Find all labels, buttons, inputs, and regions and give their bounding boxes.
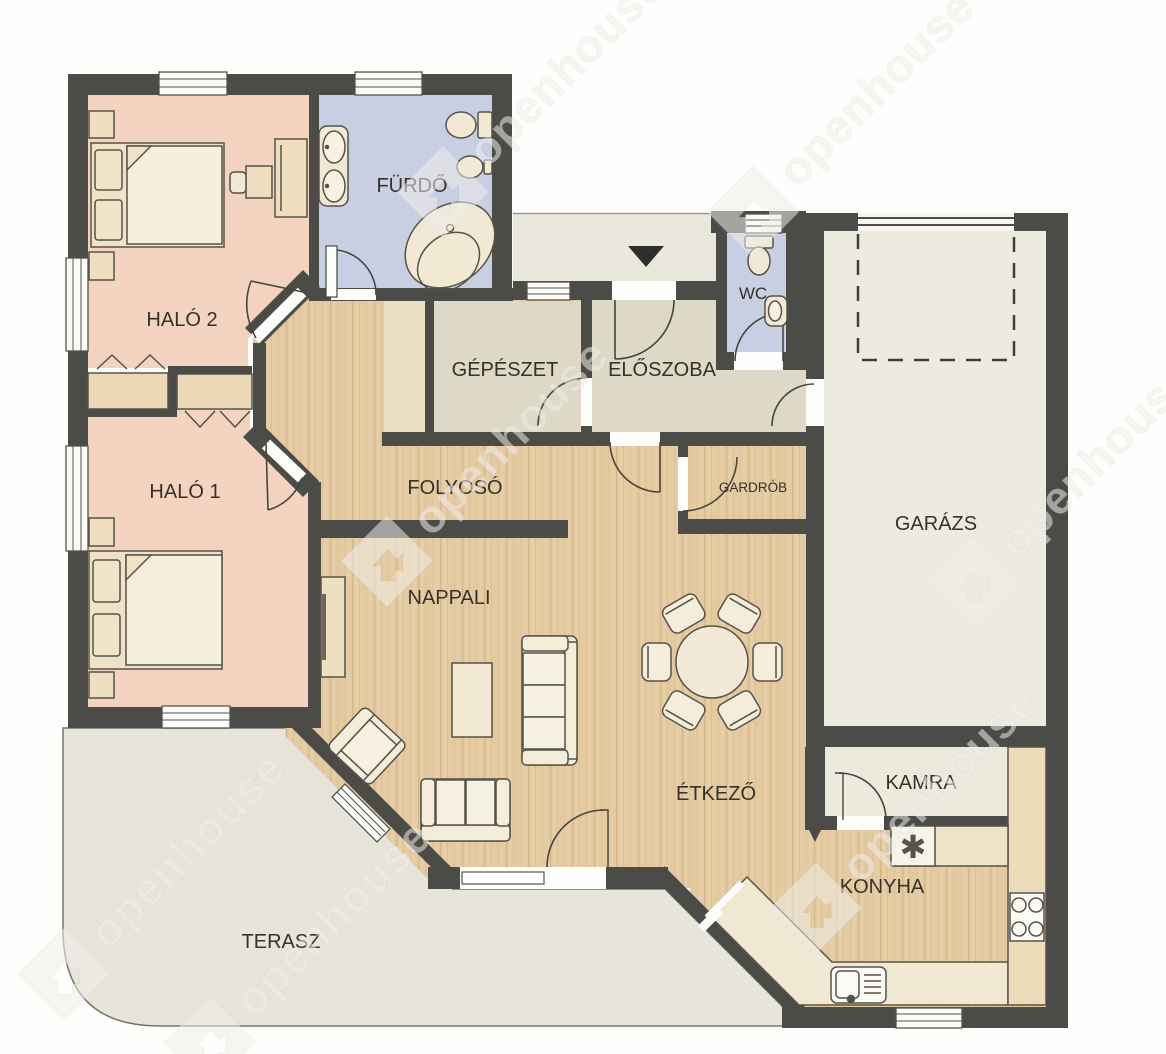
svg-text:NAPPALI: NAPPALI	[408, 587, 491, 609]
svg-text:HALÓ 1: HALÓ 1	[149, 480, 220, 503]
svg-text:GARDRÓB: GARDRÓB	[719, 480, 787, 495]
svg-text:WC: WC	[739, 284, 767, 303]
svg-text:ELŐSZOBA: ELŐSZOBA	[608, 358, 716, 381]
svg-text:KONYHA: KONYHA	[840, 876, 925, 898]
svg-text:HALÓ 2: HALÓ 2	[146, 308, 217, 331]
svg-text:GARÁZS: GARÁZS	[895, 512, 977, 535]
svg-text:ÉTKEZŐ: ÉTKEZŐ	[676, 782, 756, 805]
